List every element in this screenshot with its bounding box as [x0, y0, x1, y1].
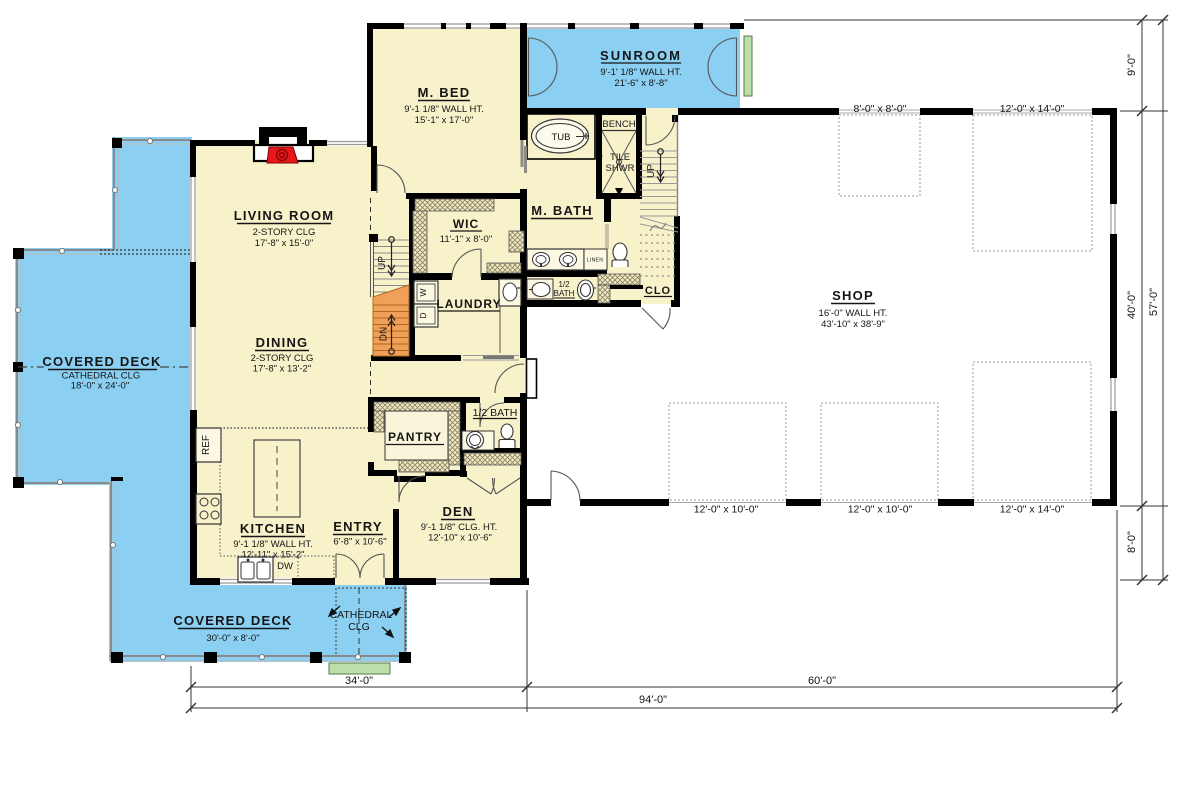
svg-text:UP: UP — [377, 256, 388, 270]
svg-text:LAUNDRY: LAUNDRY — [436, 297, 501, 311]
svg-text:34'-0": 34'-0" — [345, 675, 373, 687]
svg-text:1/2: 1/2 — [558, 280, 570, 289]
svg-text:18'-0" x 24'-0": 18'-0" x 24'-0" — [71, 381, 129, 392]
svg-text:SHWR: SHWR — [605, 163, 634, 174]
svg-text:11'-1" x 8'-0": 11'-1" x 8'-0" — [440, 234, 492, 245]
svg-text:TUB: TUB — [552, 132, 571, 143]
svg-text:M. BATH: M. BATH — [531, 203, 593, 218]
svg-text:ENTRY: ENTRY — [333, 519, 383, 534]
svg-text:DW: DW — [277, 561, 293, 572]
svg-text:2-STORY CLG: 2-STORY CLG — [253, 227, 316, 238]
svg-text:8'-0" x 8'-0": 8'-0" x 8'-0" — [854, 103, 907, 115]
svg-text:LIVING ROOM: LIVING ROOM — [234, 208, 335, 223]
svg-text:9'-1 1/8" CLG. HT.: 9'-1 1/8" CLG. HT. — [421, 522, 497, 533]
svg-text:12'-0" x 10'-0": 12'-0" x 10'-0" — [848, 504, 913, 516]
svg-text:43'-10" x 38'-9": 43'-10" x 38'-9" — [821, 319, 885, 330]
svg-text:REF: REF — [201, 435, 212, 455]
svg-text:17'-8" x 15'-0": 17'-8" x 15'-0" — [255, 238, 313, 249]
svg-text:PANTRY: PANTRY — [388, 430, 442, 444]
svg-text:DN: DN — [379, 327, 390, 341]
svg-text:SUNROOM: SUNROOM — [600, 48, 682, 63]
svg-text:W: W — [418, 288, 428, 296]
svg-text:KITCHEN: KITCHEN — [240, 521, 306, 536]
svg-text:17'-8" x 13'-2": 17'-8" x 13'-2" — [253, 364, 311, 375]
svg-text:WIC: WIC — [453, 217, 479, 231]
svg-text:9'-0": 9'-0" — [1126, 54, 1138, 76]
svg-text:DEN: DEN — [442, 504, 473, 519]
svg-text:CLG: CLG — [348, 621, 370, 633]
svg-text:TILE: TILE — [610, 152, 630, 163]
svg-text:40'-0": 40'-0" — [1126, 291, 1138, 319]
svg-text:SHOP: SHOP — [832, 288, 874, 303]
svg-text:CLO: CLO — [645, 285, 671, 297]
svg-text:LINEN: LINEN — [587, 258, 603, 264]
svg-text:BATH: BATH — [554, 289, 575, 298]
svg-text:9'-1' 1/8" WALL HT.: 9'-1' 1/8" WALL HT. — [600, 67, 681, 78]
svg-text:9'-1 1/8" WALL HT.: 9'-1 1/8" WALL HT. — [233, 539, 312, 550]
svg-text:12'-0" x 14'-0": 12'-0" x 14'-0" — [1000, 504, 1065, 516]
svg-text:BENCH: BENCH — [602, 119, 635, 130]
svg-text:12'-0" x 14'-0": 12'-0" x 14'-0" — [1000, 103, 1065, 115]
svg-text:COVERED DECK: COVERED DECK — [42, 354, 161, 369]
svg-text:M. BED: M. BED — [418, 85, 471, 100]
svg-text:2-STORY CLG: 2-STORY CLG — [251, 353, 314, 364]
svg-text:15'-1" x 17'-0": 15'-1" x 17'-0" — [415, 115, 473, 126]
svg-text:57'-0": 57'-0" — [1148, 288, 1160, 316]
svg-text:COVERED DECK: COVERED DECK — [173, 613, 292, 628]
svg-text:12'-10" x 10'-6": 12'-10" x 10'-6" — [428, 533, 492, 544]
svg-text:12'-11" x 15'-2": 12'-11" x 15'-2" — [241, 550, 304, 561]
svg-text:1/2 BATH: 1/2 BATH — [473, 407, 518, 419]
svg-text:30'-0" x 8'-0": 30'-0" x 8'-0" — [206, 633, 259, 644]
svg-text:6'-8" x 10'-6": 6'-8" x 10'-6" — [333, 537, 386, 548]
svg-text:21'-6" x 8'-8": 21'-6" x 8'-8" — [614, 78, 667, 89]
svg-text:60'-0": 60'-0" — [808, 675, 836, 687]
svg-text:D: D — [418, 312, 428, 318]
svg-text:8'-0": 8'-0" — [1126, 531, 1138, 553]
svg-text:12'-0" x 10'-0": 12'-0" x 10'-0" — [694, 504, 759, 516]
svg-text:UP: UP — [646, 164, 657, 178]
svg-text:16'-0" WALL HT.: 16'-0" WALL HT. — [819, 308, 888, 319]
svg-text:94'-0": 94'-0" — [639, 694, 667, 706]
svg-text:9'-1 1/8" WALL HT.: 9'-1 1/8" WALL HT. — [404, 104, 483, 115]
svg-text:CATHEDRAL: CATHEDRAL — [330, 609, 393, 621]
svg-text:DINING: DINING — [256, 335, 309, 350]
